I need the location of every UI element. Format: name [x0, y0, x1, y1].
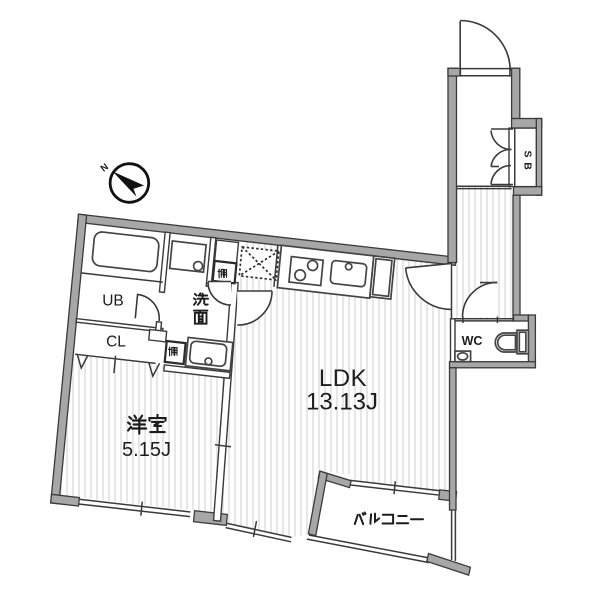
svg-text:5.15J: 5.15J	[122, 439, 171, 461]
svg-text:13.13J: 13.13J	[306, 389, 378, 416]
svg-text:CL: CL	[106, 334, 126, 351]
svg-text:S: S	[522, 150, 534, 157]
svg-text:B: B	[522, 162, 534, 170]
svg-text:WC: WC	[462, 334, 483, 348]
svg-text:UB: UB	[102, 293, 124, 310]
